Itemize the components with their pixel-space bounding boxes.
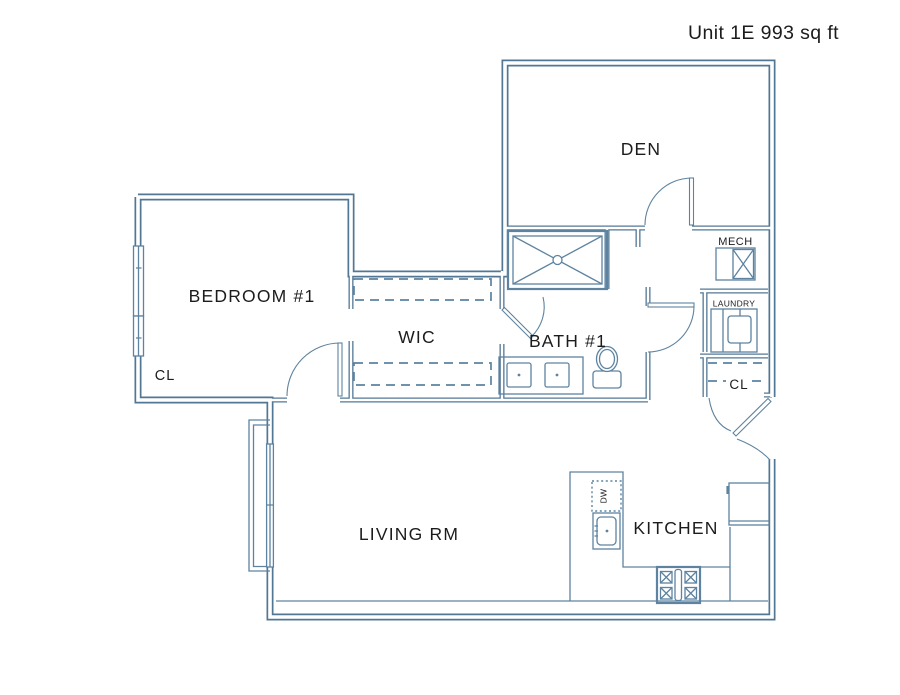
room-label-den: DEN <box>621 139 662 159</box>
bath-vanity <box>499 357 583 394</box>
room-label-kitchen: KITCHEN <box>633 518 718 538</box>
room-label-bedroom1: BEDROOM #1 <box>189 286 316 306</box>
room-label-bath1: BATH #1 <box>529 331 607 351</box>
washer-dryer-icon <box>711 309 757 352</box>
shower <box>508 231 607 289</box>
bedroom-windows <box>134 246 144 356</box>
room-label-mech: MECH <box>718 236 752 248</box>
bedroom-door <box>287 343 342 396</box>
room-label-wic: WIC <box>398 327 436 347</box>
range-icon <box>657 567 700 603</box>
entry-door <box>733 399 771 461</box>
entry-closet-door <box>709 398 731 431</box>
room-label-laundry: LAUNDRY <box>713 299 756 309</box>
appliance-label-dishwasher: DW <box>599 489 609 504</box>
bath-door <box>648 303 694 352</box>
floor-plan-page: Unit 1E 993 sq ft DEN BEDROOM #1 CL WIC … <box>0 0 900 695</box>
toilet <box>593 347 621 389</box>
kitchen-sink-icon <box>593 513 620 549</box>
water-heater-icon <box>716 248 755 280</box>
room-label-entry-closet: CL <box>729 377 748 392</box>
den-door <box>645 178 694 225</box>
room-label-bedroom-closet: CL <box>155 368 176 384</box>
labels: Unit 1E 993 sq ft DEN BEDROOM #1 CL WIC … <box>155 22 839 544</box>
room-label-living: LIVING RM <box>359 524 459 544</box>
fridge-icon <box>728 483 770 525</box>
floor-plan-svg: Unit 1E 993 sq ft DEN BEDROOM #1 CL WIC … <box>0 0 900 695</box>
unit-title: Unit 1E 993 sq ft <box>688 22 839 44</box>
